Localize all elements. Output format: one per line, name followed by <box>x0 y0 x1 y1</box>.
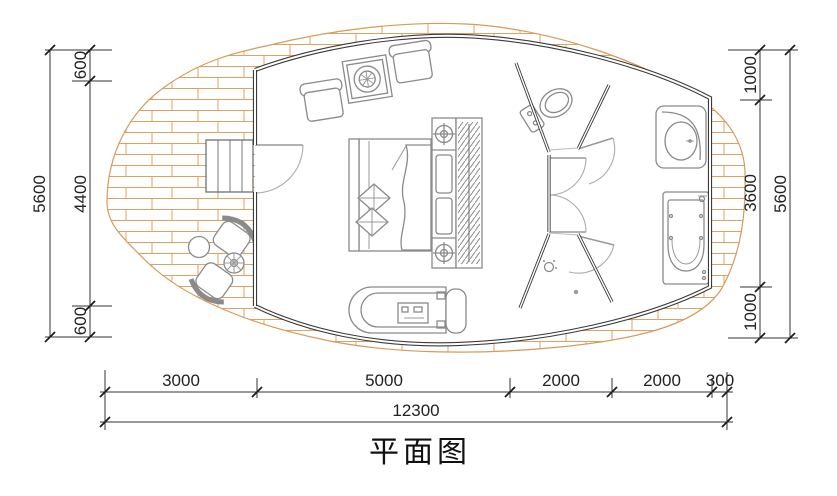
outdoor-plant <box>224 253 244 273</box>
dimension-left: 5600 600 4400 600 <box>30 45 112 342</box>
dim-right-seg-0: 1000 <box>741 56 760 94</box>
dim-bottom-seg-1: 5000 <box>365 371 403 390</box>
wardrobe <box>456 118 482 268</box>
outdoor-table <box>189 237 210 258</box>
dim-bottom-seg-4: 300 <box>706 371 734 390</box>
dim-bottom-seg-0: 3000 <box>162 371 200 390</box>
dim-left-seg-1: 4400 <box>71 175 90 213</box>
washbasin <box>656 106 706 168</box>
dim-left-seg-2: 600 <box>71 307 90 335</box>
floor-drain-icon <box>574 290 578 294</box>
bathtub <box>663 192 709 284</box>
dim-right-seg-2: 1000 <box>741 293 760 331</box>
dimension-bottom: 3000 5000 2000 2000 300 12300 <box>100 370 734 430</box>
page-title: 平面图 <box>369 436 471 469</box>
bed <box>349 139 431 251</box>
dim-bottom-seg-2: 2000 <box>542 371 580 390</box>
dim-bottom-seg-3: 2000 <box>643 371 681 390</box>
lounge-tub <box>349 287 466 333</box>
dim-left-total: 5600 <box>30 175 49 213</box>
bed-headboard <box>349 139 359 251</box>
dim-right-seg-1: 3600 <box>741 174 760 212</box>
headboard-console <box>432 118 456 268</box>
floor-plan-canvas: 5600 600 4400 600 1000 3600 1000 5600 30… <box>0 0 837 496</box>
dim-bottom-total: 12300 <box>392 401 439 420</box>
dim-left-seg-0: 600 <box>71 51 90 79</box>
entry-steps <box>206 140 253 192</box>
dim-right-total: 5600 <box>771 175 790 213</box>
floor-plan-page: 5600 600 4400 600 1000 3600 1000 5600 30… <box>0 0 837 496</box>
coffee-table <box>342 55 392 103</box>
